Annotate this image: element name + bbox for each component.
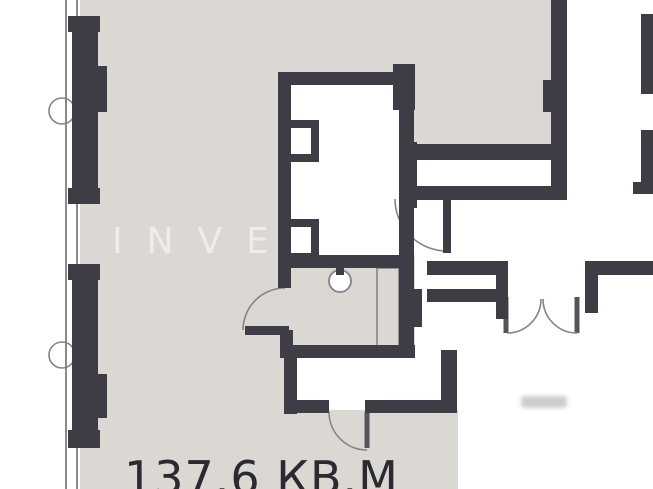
area-label: 137.6 КВ.М xyxy=(124,451,399,489)
wall-segment xyxy=(496,261,508,319)
wall-pier-upper xyxy=(72,18,98,202)
french-door-arc-right xyxy=(543,299,577,333)
bottom-room-door-arc xyxy=(329,412,367,450)
french-door-arc-left xyxy=(507,299,541,333)
wall-segment xyxy=(427,289,502,302)
ceiling-lamp-tick xyxy=(336,267,344,275)
wall-segment xyxy=(365,400,457,413)
wall-segment xyxy=(551,0,567,188)
wall-segment xyxy=(416,186,567,200)
wall-segment xyxy=(283,345,415,358)
wall-pier-lower xyxy=(72,266,98,448)
wall-segment xyxy=(68,188,100,204)
floor-plan: INVE 137.6 КВ.М xyxy=(0,0,653,489)
wall-segment xyxy=(633,182,653,194)
wall-segment xyxy=(98,66,107,112)
duct-shaft-upper-interior xyxy=(291,128,311,154)
right-wall-window-gap xyxy=(641,94,653,130)
faint-room-label xyxy=(521,396,567,408)
wall-segment xyxy=(400,144,567,160)
wall-segment xyxy=(393,64,415,110)
wall-segment xyxy=(98,374,107,418)
bathtub-outline xyxy=(377,268,399,346)
wall-segment xyxy=(278,72,400,85)
watermark: INVE xyxy=(112,221,293,262)
duct-shaft-lower-interior xyxy=(291,227,311,253)
wall-segment xyxy=(68,430,100,448)
wall-segment xyxy=(400,314,418,326)
wall-segment xyxy=(285,400,329,413)
corridor-door-leaf xyxy=(443,197,451,253)
bathroom-door-arc xyxy=(243,288,285,330)
wall-segment xyxy=(543,80,552,112)
wall-segment xyxy=(585,261,598,313)
